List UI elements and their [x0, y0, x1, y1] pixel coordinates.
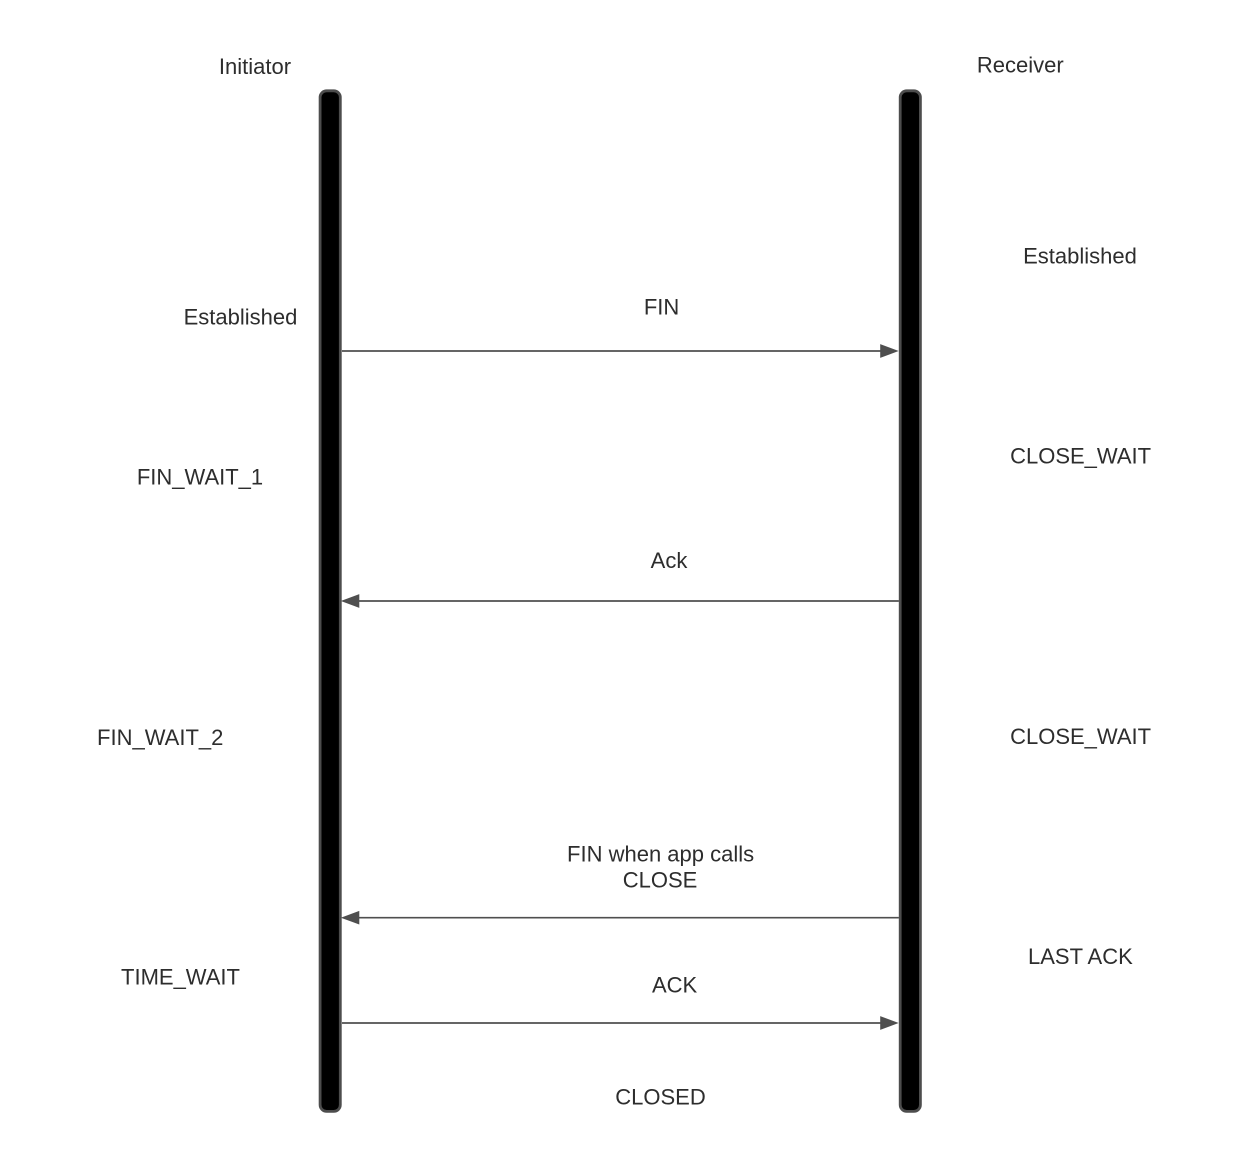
svg-text:CLOSED: CLOSED — [615, 1085, 705, 1110]
svg-text:Established: Established — [1023, 244, 1137, 269]
svg-text:FIN_WAIT_1: FIN_WAIT_1 — [137, 464, 263, 489]
svg-text:Initiator: Initiator — [219, 54, 291, 79]
svg-text:LAST ACK: LAST ACK — [1028, 944, 1133, 969]
svg-text:ACK: ACK — [652, 973, 698, 998]
svg-text:CLOSE_WAIT: CLOSE_WAIT — [1010, 444, 1151, 469]
svg-text:TIME_WAIT: TIME_WAIT — [121, 964, 240, 989]
svg-text:Receiver: Receiver — [977, 53, 1064, 78]
svg-text:FIN when app calls: FIN when app calls — [567, 841, 754, 866]
svg-text:Ack: Ack — [651, 548, 689, 573]
svg-text:CLOSE: CLOSE — [623, 868, 698, 893]
svg-text:FIN_WAIT_2: FIN_WAIT_2 — [97, 725, 223, 750]
svg-text:CLOSE_WAIT: CLOSE_WAIT — [1010, 724, 1151, 749]
svg-text:Established: Established — [184, 305, 298, 330]
svg-text:FIN: FIN — [644, 295, 679, 320]
